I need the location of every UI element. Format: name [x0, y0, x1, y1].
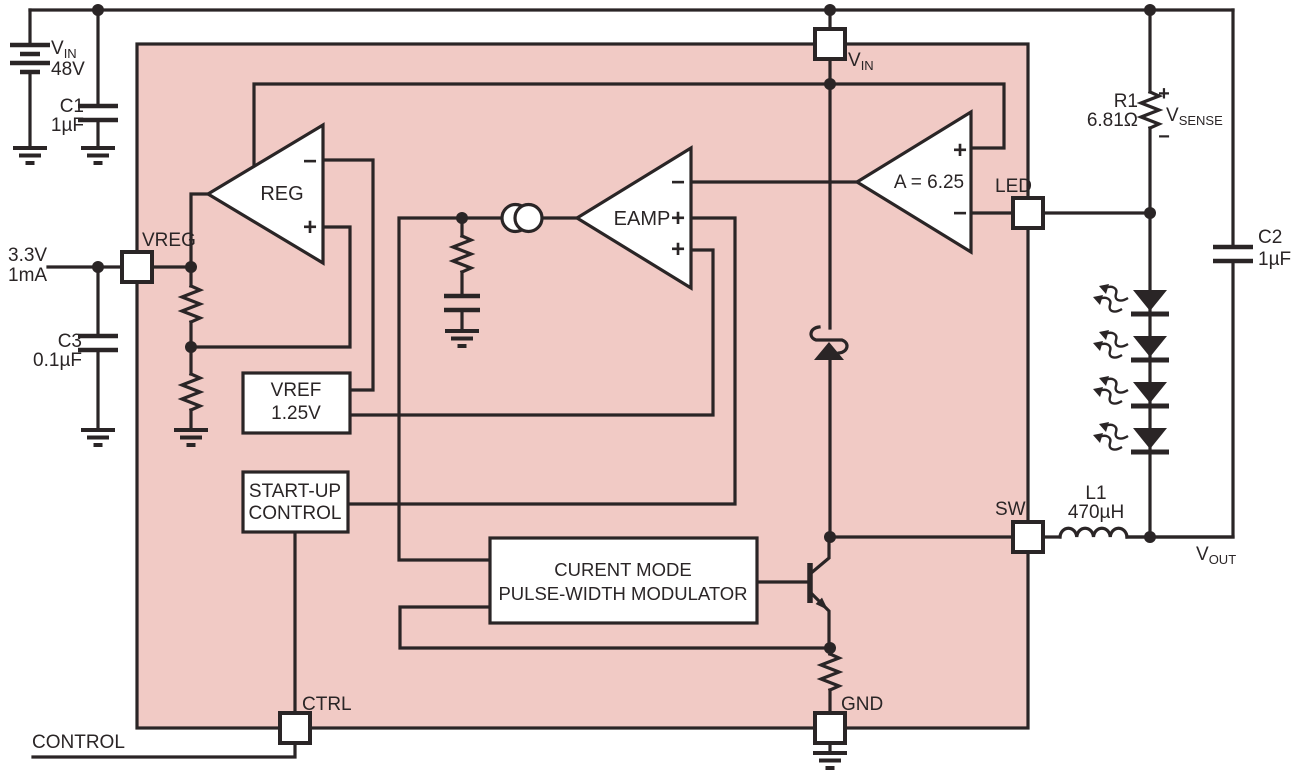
c1-name: C1 — [60, 96, 84, 117]
ground-icon — [813, 753, 847, 768]
reg-amp-label: REG — [260, 183, 303, 205]
resistor-r1-icon — [1141, 92, 1159, 128]
led-icon — [1131, 382, 1169, 406]
gain-plus-sign: + — [953, 137, 967, 164]
cap-c3-icon — [78, 336, 118, 350]
wire-c2-vout — [1127, 10, 1233, 537]
vreg-rail-voltage: 3.3V — [8, 245, 47, 266]
pwm-line2: PULSE-WIDTH MODULATOR — [498, 583, 747, 604]
cap-c2-icon — [1213, 247, 1253, 261]
startup-line1: START-UP — [249, 481, 341, 502]
reg-plus-sign: + — [303, 214, 317, 241]
pwm-line1: CURENT MODE — [554, 559, 691, 580]
pin-led — [1013, 198, 1043, 228]
r1-value: 6.81Ω — [1087, 110, 1138, 131]
pin-gnd-label: GND — [841, 694, 883, 715]
current-source-icon — [502, 205, 542, 232]
vsense-minus-sign: − — [1158, 126, 1170, 148]
eamp-minus-sign: − — [671, 169, 685, 196]
led-glow-icon — [1093, 341, 1122, 358]
ground-icon — [13, 148, 47, 163]
pin-gnd — [815, 713, 845, 743]
pin-sw — [1013, 522, 1043, 552]
supply-label: VIN — [51, 38, 77, 61]
schematic-page: REG − + EAMP − + + A = 6.25 + − VREF 1.2… — [0, 0, 1293, 774]
led-icon — [1131, 428, 1169, 452]
pin-vreg-label: VREG — [142, 230, 196, 251]
led-driver-schematic: REG − + EAMP − + + A = 6.25 + − VREF 1.2… — [0, 0, 1293, 774]
l1-value: 470µH — [1068, 502, 1124, 523]
led-glow-icon — [1093, 387, 1122, 404]
led-glow-icon — [1093, 433, 1122, 450]
ground-icon — [81, 430, 115, 445]
pin-sw-label: SW — [995, 499, 1026, 520]
vout-label: VOUT — [1196, 544, 1236, 567]
pin-vreg — [122, 252, 152, 282]
gain-minus-sign: − — [953, 200, 967, 227]
gain-amp-label: A = 6.25 — [894, 172, 964, 193]
cap-c1-icon — [78, 106, 118, 120]
eamp-plus-bot-sign: + — [671, 236, 685, 263]
eamp-plus-mid-sign: + — [671, 205, 685, 232]
control-net-label: CONTROL — [32, 732, 125, 753]
inductor-l1-icon — [1060, 528, 1127, 537]
c2-name: C2 — [1258, 227, 1282, 248]
startup-line2: CONTROL — [249, 503, 342, 524]
eamp-label: EAMP — [614, 208, 671, 230]
battery-icon — [10, 45, 50, 72]
l1-name: L1 — [1085, 483, 1106, 504]
vsense-plus-sign: + — [1158, 83, 1170, 105]
vref-line2: 1.25V — [271, 403, 321, 424]
pin-ctrl — [280, 713, 310, 743]
r1-name: R1 — [1114, 91, 1138, 112]
c3-name: C3 — [58, 331, 82, 352]
c1-value: 1µF — [51, 115, 84, 136]
led-string — [1093, 284, 1169, 452]
c3-value: 0.1µF — [33, 350, 82, 371]
c2-value: 1µF — [1258, 249, 1291, 270]
led-icon — [1131, 290, 1169, 314]
vref-line1: VREF — [271, 380, 322, 401]
pin-vin — [815, 29, 845, 59]
reg-minus-sign: − — [303, 148, 317, 175]
pin-ctrl-label: CTRL — [302, 694, 352, 715]
vreg-rail-current: 1mA — [8, 265, 47, 286]
supply-value: 48V — [51, 59, 85, 80]
startup-control-block: START-UP CONTROL — [243, 472, 348, 532]
led-icon — [1131, 336, 1169, 360]
pwm-block: CURENT MODE PULSE-WIDTH MODULATOR — [490, 538, 757, 623]
vsense-label: VSENSE — [1166, 105, 1223, 128]
pin-led-label: LED — [995, 176, 1032, 197]
ground-icon — [81, 148, 115, 163]
vref-block: VREF 1.25V — [243, 373, 350, 433]
led-glow-icon — [1093, 295, 1122, 312]
